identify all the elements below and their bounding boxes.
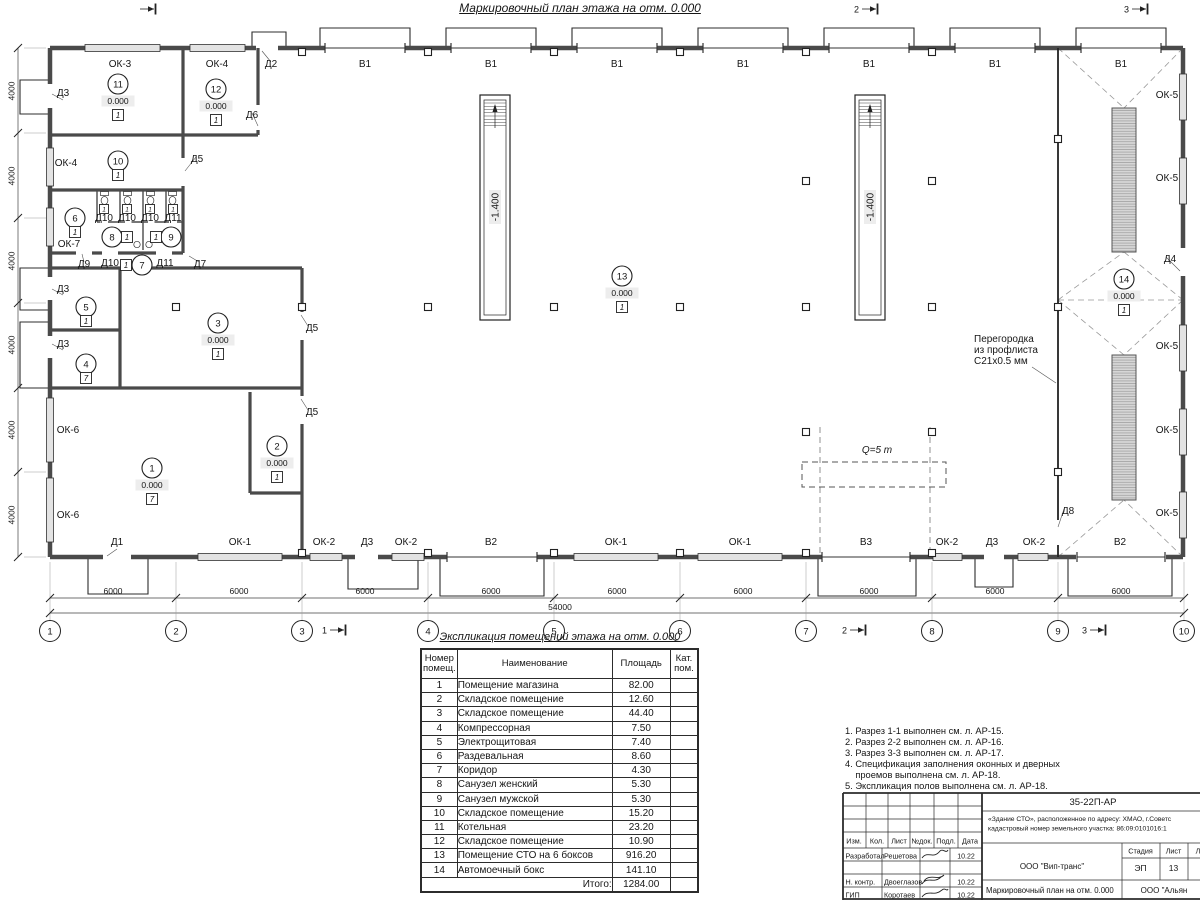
toilet-tank (124, 192, 132, 196)
plan-label: Д11 (156, 258, 174, 269)
table-cell: 141.10 (612, 863, 670, 877)
plan-label: 6000 (860, 586, 879, 596)
plan-label: ОК-1 (229, 537, 252, 548)
change-table-header: Подл. (936, 837, 955, 846)
table-cell: 7.50 (612, 721, 670, 735)
signer-name: Двоеглазов (884, 878, 922, 887)
column (551, 49, 558, 56)
plan-label: 4000 (7, 251, 17, 270)
gates (325, 43, 1165, 562)
window (1180, 325, 1187, 371)
total-value: 1284.00 (612, 877, 670, 892)
room-marker: 91 (151, 227, 182, 247)
plan-label: -1.400 (864, 190, 877, 224)
table-cell (670, 778, 698, 792)
toilet-tank (147, 192, 155, 196)
plan-label: ОК-4 (55, 158, 78, 169)
plan-label-text: ОК-7 (58, 239, 81, 250)
plan-label: Д5 (306, 323, 319, 334)
floor-type-number: 7 (84, 374, 89, 383)
plan-label: 6000 (230, 586, 249, 596)
sheets-label: Л (1196, 847, 1200, 856)
room-marker: 10.0007 (136, 458, 169, 505)
room-marker: 110.0001 (102, 74, 135, 121)
plan-label: Д9 (78, 259, 91, 270)
toilet-bowl (101, 197, 108, 205)
column (929, 49, 936, 56)
column (425, 49, 432, 56)
plan-label-text: Д3 (57, 284, 70, 295)
plan-label: Д8 (1062, 506, 1075, 517)
plan-label: Д11 (164, 213, 182, 224)
column (803, 178, 810, 185)
signature-date: 10.22 (957, 854, 975, 861)
room-number: 11 (113, 79, 123, 90)
table-row: 3Складское помещение44.40 (421, 707, 698, 721)
toilet-tank (169, 192, 177, 196)
table-cell: Котельная (457, 820, 612, 834)
axis-number: 9 (1055, 627, 1060, 638)
toilet-bowl (124, 197, 131, 205)
axis-number: 8 (929, 627, 934, 638)
room-number: 13 (617, 271, 628, 282)
plan-label-text: В1 (989, 59, 1002, 70)
plan-label: 6000 (1112, 586, 1131, 596)
plan-label-text: ОК-6 (57, 510, 80, 521)
plan-label-text: 6000 (860, 586, 879, 596)
plan-label-text: из профлиста (974, 344, 1038, 356)
plan-label: В1 (485, 59, 498, 70)
plan-label: Д6 (246, 110, 259, 121)
table-cell: 4.30 (612, 764, 670, 778)
floor-type-number: 1 (171, 206, 175, 213)
plan-label: Д10 (118, 213, 136, 224)
column (551, 304, 558, 311)
table-cell: Компрессорная (457, 721, 612, 735)
window (47, 398, 54, 462)
table-cell: 5 (421, 735, 457, 749)
window (1180, 74, 1187, 120)
column (173, 304, 180, 311)
plan-label: Д10 (95, 213, 113, 224)
table-cell (670, 679, 698, 693)
room-marker: 81 (102, 227, 133, 247)
plan-label: В3 (860, 537, 873, 548)
elevation-value: 0.000 (611, 288, 633, 298)
section-arrow-head (338, 627, 344, 633)
drawing-sheet: ОК-3ОК-4Д2В1В1В1В1В1В1В1Д3ОК-4ОК-7Д3Д3ОК… (0, 0, 1200, 900)
column (677, 304, 684, 311)
table-cell (670, 707, 698, 721)
plan-label-text: 6000 (986, 586, 1005, 596)
sheet-title: Маркировочный план на отм. 0.000 (986, 886, 1114, 895)
section-number: 3 (1082, 626, 1087, 636)
plan-label-text: 6000 (104, 586, 123, 596)
column (803, 550, 810, 557)
column (803, 429, 810, 436)
plan-label-text: Д7 (194, 259, 207, 270)
table-cell (670, 735, 698, 749)
table-header-cell: Кат. пом. (670, 649, 698, 679)
plan-label: Д3 (57, 284, 70, 295)
floor-type-number: 1 (125, 206, 129, 213)
table-cell: 12 (421, 835, 457, 849)
gate-canopy (572, 28, 662, 48)
plan-label-text: В2 (1114, 537, 1127, 548)
plan-label-text: 6000 (734, 586, 753, 596)
column (551, 550, 558, 557)
plan-label: -1.400 (489, 190, 502, 224)
table-row: 12Складское помещение10.90 (421, 835, 698, 849)
axis-bubble: 3 (292, 621, 313, 642)
plan-label-text: ОК-5 (1156, 341, 1179, 352)
plan-label-text: ОК-2 (936, 537, 959, 548)
dimension-lines (14, 44, 1188, 621)
plan-label: ОК-4 (206, 59, 229, 70)
plan-label: Д4 (1164, 254, 1177, 265)
change-table-header: Дата (962, 837, 978, 846)
crane-outline (802, 462, 946, 487)
plan-label: из профлиста (974, 344, 1038, 356)
change-table-header: Кол. (870, 837, 884, 846)
floor-type-number: 1 (84, 317, 88, 326)
table-cell: Помещение СТО на 6 боксов (457, 849, 612, 863)
section-arrow-head (858, 627, 864, 633)
plan-label: ОК-5 (1156, 508, 1179, 519)
plan-label: В1 (1115, 59, 1128, 70)
column (1055, 469, 1062, 476)
plan-label-text: 4000 (7, 81, 17, 100)
section-mark (140, 4, 156, 15)
table-cell (670, 863, 698, 877)
floor-type-number: 1 (116, 111, 120, 120)
window (698, 554, 782, 561)
table-row: 11Котельная23.20 (421, 820, 698, 834)
plan-label: В1 (611, 59, 624, 70)
document-number: 35-22П-АР (1070, 797, 1117, 808)
table-cell: 8 (421, 778, 457, 792)
plan-label-text: Д10 (95, 213, 113, 224)
section-number: 1 (322, 626, 327, 636)
plan-label: Д5 (191, 154, 204, 165)
toilet-tank (101, 192, 109, 196)
plan-label-text: С21х0.5 мм (974, 356, 1028, 367)
table-total-row: Итого:1284.00 (421, 877, 698, 892)
plan-label: Д3 (361, 537, 374, 548)
plan-label: В1 (863, 59, 876, 70)
plan-label-text: Д9 (78, 259, 91, 270)
signer-name: Решетова (884, 852, 917, 861)
room-number: 9 (168, 232, 173, 243)
plan-label: ОК-1 (605, 537, 628, 548)
room-number: 3 (215, 318, 220, 329)
plan-label-text: Д11 (164, 213, 182, 224)
plan-label: Д10 (101, 258, 119, 269)
floor-type-number: 1 (125, 233, 129, 242)
plan-label: ОК-3 (109, 59, 132, 70)
plan-label: Д7 (194, 259, 207, 270)
column (677, 550, 684, 557)
elevation-value: 0.000 (141, 480, 163, 490)
plan-label-text: Д5 (306, 407, 319, 418)
table-cell: 5.30 (612, 792, 670, 806)
plan-label-text: ОК-4 (206, 59, 229, 70)
room-number: 1 (149, 463, 154, 474)
floor-type-number: 1 (1122, 306, 1126, 315)
column (425, 550, 432, 557)
toilet-bowl (169, 197, 176, 205)
floor-type-number: 1 (214, 116, 218, 125)
sheet-number: 13 (1169, 863, 1179, 873)
column (929, 178, 936, 185)
plan-label: 6000 (608, 586, 627, 596)
table-cell (670, 764, 698, 778)
table-cell (670, 721, 698, 735)
window (1180, 409, 1187, 455)
column (677, 49, 684, 56)
plan-label-text: Д6 (246, 110, 259, 121)
stage-value: ЭП (1134, 863, 1146, 873)
plan-label: Д2 (265, 59, 278, 70)
table-cell: 23.20 (612, 820, 670, 834)
table-cell (670, 820, 698, 834)
inspection-pits (480, 95, 885, 320)
table-cell: 916.20 (612, 849, 670, 863)
axis-number: 10 (1179, 627, 1190, 638)
plan-label-text: Д10 (118, 213, 136, 224)
plan-label: Д1 (111, 537, 124, 548)
room-number: 6 (72, 213, 77, 224)
section-arrow-head (1098, 627, 1104, 633)
table-cell: Коридор (457, 764, 612, 778)
table-cell: 4 (421, 721, 457, 735)
axis-bubble: 8 (922, 621, 943, 642)
room-marker: 101 (108, 151, 128, 181)
plan-label-text: В1 (485, 59, 498, 70)
gate-canopy (1076, 28, 1166, 48)
company-name-2: ООО "Альян (1141, 886, 1188, 895)
plan-label-text: 6000 (356, 586, 375, 596)
sink (134, 241, 140, 247)
axis-bubble: 9 (1048, 621, 1069, 642)
table-row: 10Складское помещение15.20 (421, 806, 698, 820)
window (190, 45, 245, 52)
gate-canopy (698, 28, 788, 48)
gate-canopy (446, 28, 536, 48)
plan-label: 6000 (734, 586, 753, 596)
table-header-cell: Наименование (457, 649, 612, 679)
elevation-value: 0.000 (1113, 291, 1135, 301)
plan-label-text: ОК-1 (229, 537, 252, 548)
table-cell (670, 749, 698, 763)
window (47, 208, 54, 246)
table-cell: 13 (421, 849, 457, 863)
window (310, 554, 342, 561)
plan-label-text: ОК-5 (1156, 425, 1179, 436)
plan-label: ОК-6 (57, 425, 80, 436)
table-cell (670, 693, 698, 707)
window (1018, 554, 1048, 561)
table-cell: 82.00 (612, 679, 670, 693)
plan-label: Д3 (986, 537, 999, 548)
column (929, 429, 936, 436)
table-cell: 2 (421, 693, 457, 707)
plan-label-text: 6000 (1112, 586, 1131, 596)
table-cell: Санузел мужской (457, 792, 612, 806)
table-cell: 11 (421, 820, 457, 834)
table-cell: 10 (421, 806, 457, 820)
plan-label: Д3 (57, 88, 70, 99)
plan-label: ОК-2 (936, 537, 959, 548)
signature-marks (922, 850, 948, 897)
plan-label: 4000 (7, 81, 17, 100)
table-cell: Автомоечный бокс (457, 863, 612, 877)
room-marker: 20.0001 (261, 436, 294, 483)
porches-and-canopies (20, 28, 1172, 596)
plan-label-text: Д8 (1062, 506, 1075, 517)
signature-date: 10.22 (957, 893, 975, 900)
change-table-header: Лист (891, 837, 907, 846)
change-table-header: Изм. (846, 837, 861, 846)
drawing-notes: 1. Разрез 1-1 выполнен см. л. АР-15. 2. … (845, 726, 1060, 792)
toilet-bowl (147, 197, 154, 205)
floor-type-number: 1 (124, 261, 128, 270)
plan-label: 6000 (104, 586, 123, 596)
table-row: 13Помещение СТО на 6 боксов916.20 (421, 849, 698, 863)
table-cell: Складское помещение (457, 707, 612, 721)
room-number: 12 (211, 84, 222, 95)
plan-label-text: ОК-6 (57, 425, 80, 436)
axis-bubble: 7 (796, 621, 817, 642)
section-number: 2 (854, 5, 859, 15)
explication-table: Номер помещ.НаименованиеПлощадьКат. пом.… (420, 648, 699, 893)
plan-label: Q=5 т (862, 445, 892, 456)
room-number: 2 (274, 441, 279, 452)
column (299, 49, 306, 56)
table-cell: Помещение магазина (457, 679, 612, 693)
gate-canopy (950, 28, 1040, 48)
elevation-value: 0.000 (207, 335, 229, 345)
table-cell: 9 (421, 792, 457, 806)
table-row: 4Компрессорная7.50 (421, 721, 698, 735)
room-number: 5 (83, 302, 88, 313)
table-header-row: Номер помещ.НаименованиеПлощадьКат. пом. (421, 649, 698, 679)
column (299, 550, 306, 557)
section-number: 3 (1124, 5, 1129, 15)
change-table-header: №док. (911, 837, 932, 846)
column (929, 304, 936, 311)
column (929, 550, 936, 557)
plan-label-text: Д11 (156, 258, 174, 269)
table-cell: 5.30 (612, 778, 670, 792)
room-marker: 1 (100, 205, 109, 214)
table-row: 2Складское помещение12.60 (421, 693, 698, 707)
plan-label-text: ОК-2 (395, 537, 418, 548)
table-row: 5Электрощитовая7.40 (421, 735, 698, 749)
plan-label-text: Д10 (101, 258, 119, 269)
signer-role: ГИП (846, 891, 860, 900)
plan-label: 4000 (7, 505, 17, 524)
title-block: 35-22П-АР«Здание СТО», расположенное по … (843, 793, 1200, 900)
plan-label: ОК-7 (58, 239, 81, 250)
column (803, 49, 810, 56)
section-mark: 2 (854, 4, 878, 15)
elevation-value: 0.000 (205, 101, 227, 111)
column (1055, 136, 1062, 143)
section-arrow-head (148, 6, 154, 12)
plan-label-text: Д10 (141, 213, 159, 224)
room-number: 4 (83, 359, 88, 370)
window (1180, 158, 1187, 204)
axis-bubble: 1 (40, 621, 61, 642)
plan-label-text: ОК-2 (313, 537, 336, 548)
room-markers: 10.000720.000130.0001475161718191101110.… (65, 74, 1141, 505)
plan-label-text: Д2 (265, 59, 278, 70)
axis-number: 3 (299, 627, 304, 638)
plan-label-text: 4000 (7, 251, 17, 270)
room-marker: 120.0001 (200, 79, 233, 126)
plan-label: В1 (359, 59, 372, 70)
plan-label: ОК-5 (1156, 90, 1179, 101)
window (198, 554, 282, 561)
floor-type-number: 1 (148, 206, 152, 213)
plan-label: ОК-5 (1156, 173, 1179, 184)
plan-label-text: Д3 (986, 537, 999, 548)
plan-label-text: В1 (1115, 59, 1128, 70)
plan-label-text: В1 (359, 59, 372, 70)
room-marker: 51 (76, 297, 96, 327)
plan-label: 4000 (7, 166, 17, 185)
table-header-cell: Номер помещ. (421, 649, 457, 679)
plan-label: ОК-1 (729, 537, 752, 548)
axis-bubble: 2 (166, 621, 187, 642)
plan-label: ОК-2 (1023, 537, 1046, 548)
label-leaders (52, 51, 1180, 556)
axis-bubble: 10 (1174, 621, 1195, 642)
table-cell (670, 877, 698, 892)
table-cell: Санузел женский (457, 778, 612, 792)
plan-label: ОК-6 (57, 510, 80, 521)
plan-label-text: ОК-5 (1156, 173, 1179, 184)
room-number: 7 (139, 260, 144, 271)
section-arrow-head (870, 6, 876, 12)
plan-label-text: 4000 (7, 166, 17, 185)
plan-label-text: -1.400 (866, 192, 877, 221)
leader-lines (52, 51, 1180, 556)
signature-date: 10.22 (957, 880, 975, 887)
table-cell: 15.20 (612, 806, 670, 820)
table-cell (670, 849, 698, 863)
column (1055, 304, 1062, 311)
plan-label-text: Q=5 т (862, 445, 892, 456)
carwash-bay-markings (1058, 48, 1183, 557)
floor-type-number: 1 (154, 233, 158, 242)
table-row: 14Автомоечный бокс141.10 (421, 863, 698, 877)
column (803, 304, 810, 311)
floor-type-number: 1 (275, 473, 279, 482)
section-mark: 3 (1124, 4, 1148, 15)
section-mark: 3 (1082, 625, 1106, 636)
gate-canopy (824, 28, 914, 48)
plan-label: В1 (737, 59, 750, 70)
plan-label: В2 (1114, 537, 1127, 548)
window (47, 478, 54, 542)
gate-canopy (320, 28, 410, 48)
plan-label: 54000 (548, 602, 572, 612)
total-label: Итого: (421, 877, 612, 892)
table-cell: Складское помещение (457, 693, 612, 707)
table-cell: 7 (421, 764, 457, 778)
